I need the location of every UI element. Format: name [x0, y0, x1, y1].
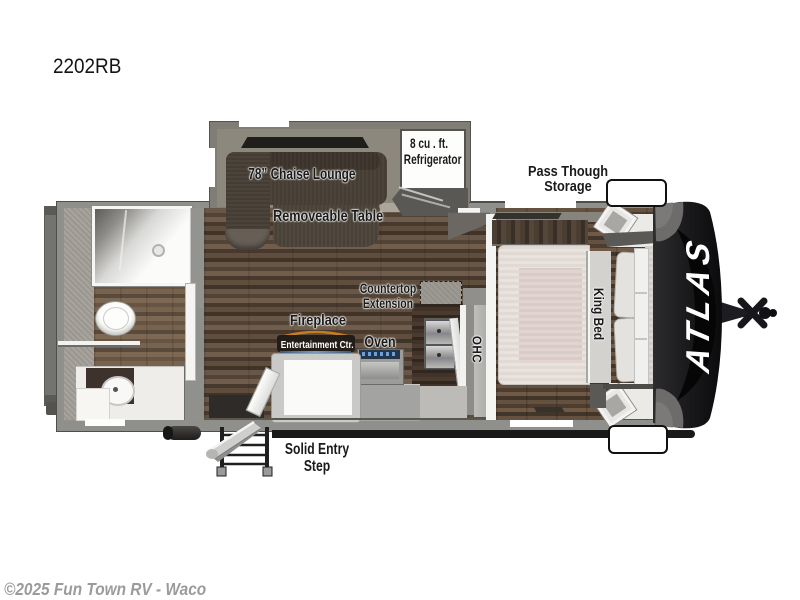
svg-text:ATLAS: ATLAS [680, 237, 717, 376]
